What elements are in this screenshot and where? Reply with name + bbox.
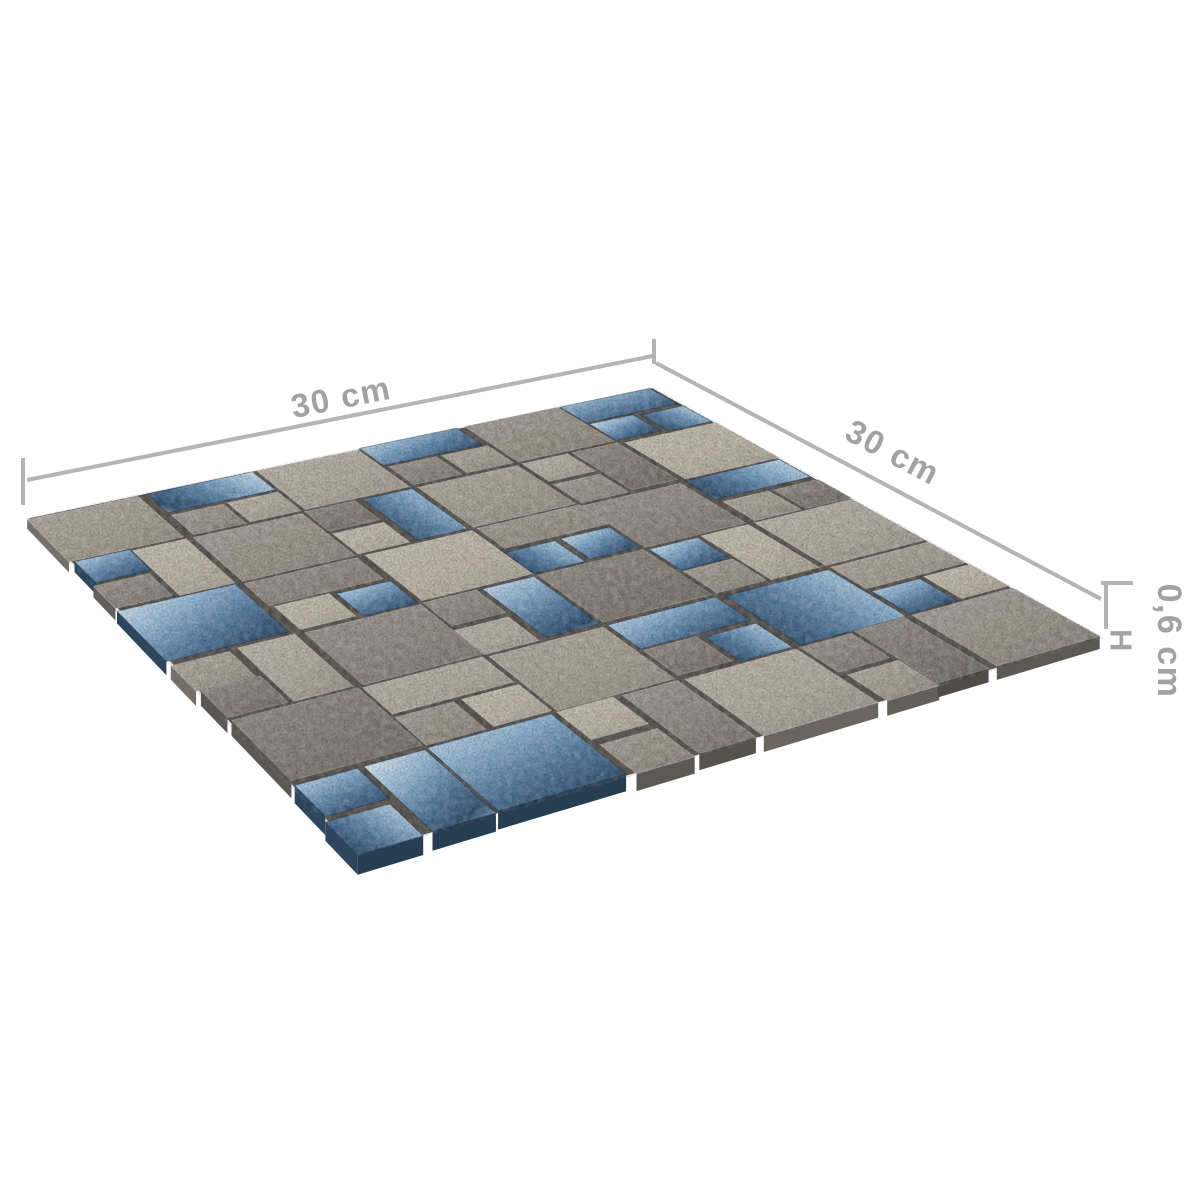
height-symbol-label: H bbox=[1104, 629, 1139, 653]
height-dimension-label: 0,6 cm bbox=[1150, 584, 1188, 699]
mosaic-tile-dimension-diagram: 30 cm 30 cm 0,6 cm H bbox=[0, 0, 1200, 1200]
depth-dimension-label: 30 cm bbox=[840, 412, 947, 492]
